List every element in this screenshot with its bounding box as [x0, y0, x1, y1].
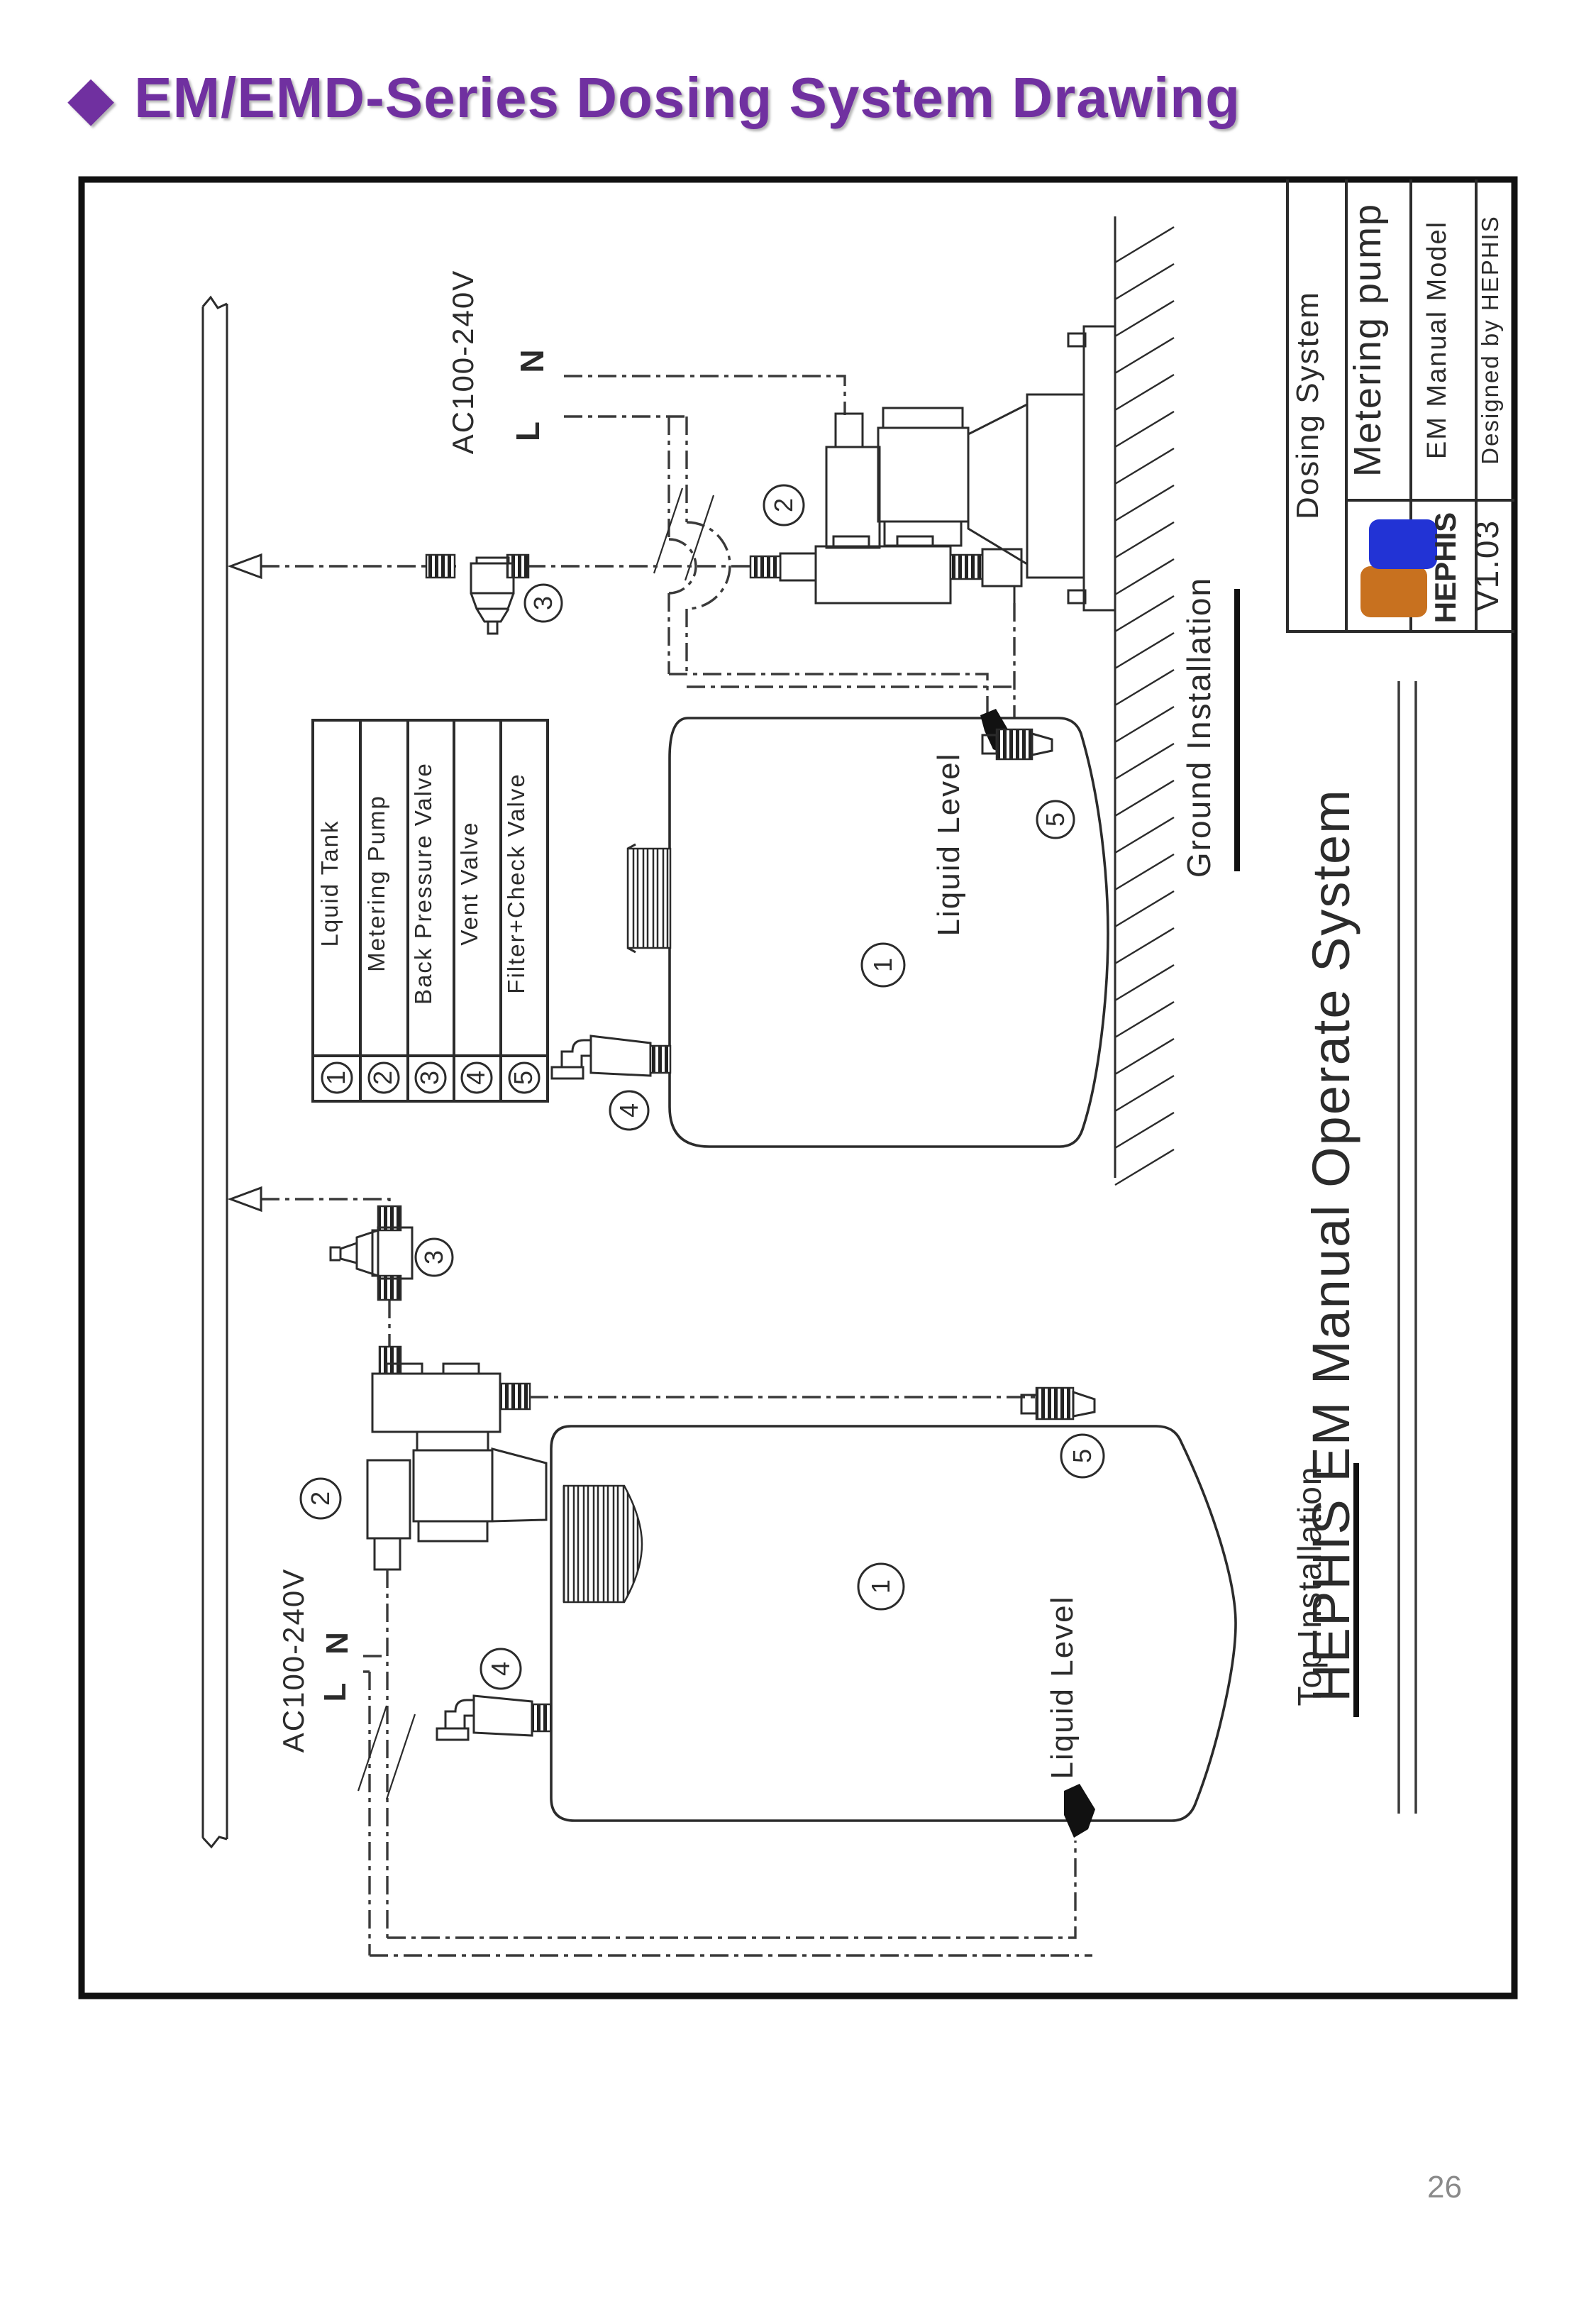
legend-label-2: Metering Pump — [363, 795, 389, 972]
vent-valve-bottom — [437, 1696, 551, 1740]
svg-text:4: 4 — [486, 1662, 515, 1676]
legend-num-5: 5 — [509, 1063, 539, 1093]
svg-text:4: 4 — [461, 1071, 490, 1085]
dosing-system-drawing: Dosing System Metering pump EM Manual Mo… — [0, 0, 1596, 2306]
legend-label-4: Vent Valve — [456, 821, 482, 945]
vent-valve-top — [552, 1036, 670, 1078]
flow-arrow-icon — [231, 1188, 261, 1210]
legend-num-1: 1 — [321, 1063, 352, 1093]
legend-row: Lquid Tank 1 — [316, 820, 352, 1093]
svg-text:2: 2 — [306, 1491, 335, 1506]
ground-installation-section: AC100-240V N L — [231, 216, 1237, 1185]
wire-break-mark — [685, 495, 714, 580]
power-label-bottom: AC100-240V — [277, 1568, 310, 1753]
page-number: 26 — [1427, 2170, 1462, 2205]
back-pressure-valve-bottom — [331, 1206, 412, 1300]
callout-vent-valve-bottom: 4 — [481, 1649, 521, 1689]
line-label-top: L — [509, 420, 546, 441]
line-label-bottom: L — [318, 1682, 353, 1702]
svg-text:4: 4 — [614, 1103, 643, 1118]
hephis-logo-text: HEPHIS — [1429, 512, 1462, 623]
power-label-top: AC100-240V — [446, 270, 480, 455]
svg-text:1: 1 — [868, 958, 897, 972]
svg-text:5: 5 — [1041, 812, 1070, 827]
ground-installation-label: Ground Installation — [1180, 577, 1217, 878]
liquid-level-label-top: Liquid Level — [931, 753, 966, 937]
callout-vent-valve-top: 4 — [610, 1091, 648, 1130]
diamond-bullet-icon: ◆ — [67, 67, 114, 128]
svg-text:3: 3 — [419, 1250, 448, 1264]
callout-filter-bottom: 5 — [1061, 1435, 1104, 1477]
liquid-tank-top — [628, 718, 1108, 1147]
svg-text:2: 2 — [769, 498, 798, 512]
legend-table: Lquid Tank 1 Metering Pump 2 Back Pressu… — [313, 720, 548, 1101]
legend-label-1: Lquid Tank — [316, 820, 343, 947]
svg-text:3: 3 — [528, 596, 558, 610]
metering-pump-top — [750, 326, 1115, 610]
legend-num-2: 2 — [368, 1063, 399, 1093]
legend-label-5: Filter+Check Valve — [503, 773, 529, 993]
suction-and-level-lines-top — [669, 603, 1014, 729]
title-block-version: V1.03 — [1468, 519, 1505, 612]
svg-text:1: 1 — [321, 1071, 350, 1085]
legend-row: Metering Pump 2 — [363, 795, 399, 1093]
ground-hatch — [1115, 227, 1174, 1185]
flow-arrow-icon — [231, 555, 261, 578]
filter-check-valve-bottom — [1021, 1388, 1095, 1419]
wire-break-mark — [387, 1714, 415, 1799]
callout-tank-top: 1 — [862, 944, 904, 986]
liquid-level-label-bottom: Liquid Level — [1045, 1596, 1080, 1780]
legend-row: Filter+Check Valve 5 — [503, 773, 539, 1093]
power-wiring-top — [564, 376, 845, 674]
drawing-watermark: HEPHIS EM Manual Operate System — [1302, 681, 1416, 1814]
legend-label-3: Back Pressure Valve — [410, 762, 436, 1005]
svg-text:5: 5 — [1068, 1449, 1097, 1463]
legend-row: Vent Valve 4 — [456, 821, 492, 1093]
process-pipe — [203, 297, 227, 1847]
svg-text:5: 5 — [509, 1071, 538, 1085]
document-page: ◆ EM/EMD-Series Dosing System Drawing Do… — [0, 0, 1596, 2306]
title-block-system: Dosing System — [1290, 291, 1325, 519]
title-block-product: Metering pump — [1346, 203, 1389, 477]
neutral-label-top: N — [514, 348, 550, 373]
page-title-text: EM/EMD-Series Dosing System Drawing — [134, 65, 1241, 131]
title-block: Dosing System Metering pump EM Manual Mo… — [1287, 180, 1514, 631]
svg-text:HEPHIS EM Manual Operate Syste: HEPHIS EM Manual Operate System — [1302, 788, 1361, 1702]
wire-break-mark — [358, 1706, 387, 1791]
discharge-line-bottom — [231, 1188, 389, 1347]
svg-text:1: 1 — [866, 1579, 895, 1594]
hephis-logo-icon: HEPHIS — [1361, 512, 1462, 623]
tank-filler-knob — [564, 1486, 642, 1602]
legend-num-4: 4 — [461, 1063, 492, 1093]
callout-pump-top: 2 — [764, 485, 804, 525]
svg-text:3: 3 — [415, 1071, 444, 1085]
neutral-label-bottom: N — [320, 1631, 355, 1655]
title-block-model: EM Manual Model — [1422, 221, 1452, 459]
metering-pump-bottom — [367, 1347, 546, 1569]
legend-row: Back Pressure Valve 3 — [410, 762, 445, 1093]
callout-back-pressure-valve-bottom: 3 — [416, 1239, 453, 1276]
back-pressure-valve-top — [426, 555, 528, 634]
callout-pump-bottom: 2 — [301, 1479, 340, 1518]
callout-tank-bottom: 1 — [858, 1564, 904, 1609]
svg-text:2: 2 — [368, 1071, 397, 1085]
top-installation-section: 3 2 AC100-240V N L — [231, 1188, 1356, 1955]
title-block-designer: Designed by HEPHIS — [1477, 215, 1503, 464]
callout-back-pressure-valve-top: 3 — [525, 585, 562, 622]
page-title: ◆ EM/EMD-Series Dosing System Drawing — [67, 65, 1241, 131]
legend-num-3: 3 — [415, 1063, 445, 1093]
callout-filter-top: 5 — [1037, 801, 1074, 838]
liquid-tank-bottom — [551, 1426, 1236, 1821]
tank-cap — [628, 849, 670, 948]
